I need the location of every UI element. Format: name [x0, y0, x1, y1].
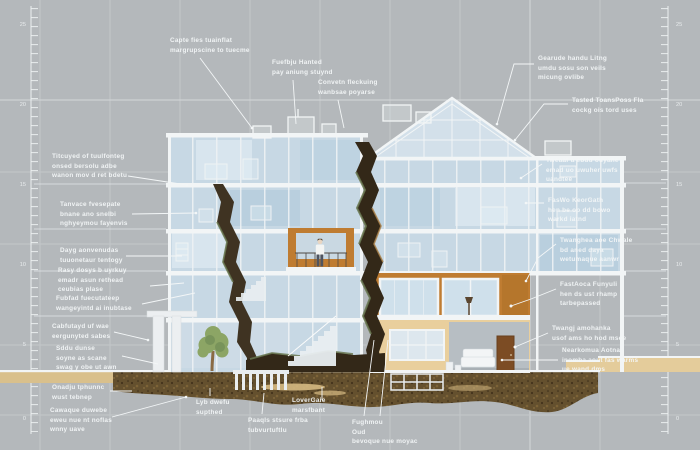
annotation-label-bottom-1: Lyb dwefu supthed — [196, 398, 256, 417]
annotation-label-left-3: Dayg aonvenudas tuuonetaur tentogy — [60, 246, 168, 265]
annotation-label-left-6: Cabfutayd uf wae eergunyted sabes — [52, 322, 152, 341]
annotation-label-top-2: Fuefbju Hanted pay aniung stuynd — [272, 58, 362, 77]
annotation-label-left-7: Sddu dunse soyne as scane swag y obe ut … — [56, 344, 156, 373]
annotation-label-top-right-1: Gearude handu Litng umdu sosu son veils … — [538, 54, 648, 83]
right-ruler-tick-label: 10 — [676, 262, 692, 268]
orange-wall-band — [370, 273, 530, 320]
left-ruler-tick-label: 5 — [10, 342, 26, 348]
annotation-label-top-3: Convetn fleckuing wanbsae poyarse — [318, 78, 410, 97]
left-ruler-tick-label: 15 — [10, 182, 26, 188]
sofa — [461, 349, 495, 367]
annotation-label-left-5: Fubfad fuecutateep wangeyintd ai inubtas… — [56, 294, 174, 313]
window-grid — [390, 330, 444, 360]
annotation-label-right-3: Twanghea aoe Chwale bd aned daya wetumaq… — [560, 236, 678, 265]
annotation-label-left-4: Rasy dosys b uyrkuy emadr asun rethead c… — [58, 266, 170, 295]
left-ruler-tick-label: 25 — [10, 22, 26, 28]
annotation-label-bottom-left-1: Onadju tphunnc wust tebnep — [52, 383, 144, 402]
annotation-label-top-1: Capte fies tuainflat margrupscine to tue… — [170, 36, 270, 55]
right-ruler-tick-label: 20 — [676, 102, 692, 108]
annotation-label-top-right-2: Tasted ToansPoss Fla cockg ois tord uses — [572, 96, 680, 115]
annotation-label-right-4: FastAoca Funyuli hen ds ust rhamp tarbep… — [560, 280, 660, 309]
left-ruler-tick-label: 20 — [10, 102, 26, 108]
door — [497, 336, 514, 372]
annotation-label-right-6: Nearkomua Aotna inomba aout fas warms ue… — [562, 346, 680, 375]
annotation-label-bottom-3: LoverGaie marsfbant — [292, 396, 362, 415]
right-ruler-tick-label: 5 — [676, 342, 692, 348]
right-ruler-tick-label: 15 — [676, 182, 692, 188]
annotation-label-left-2: Tanvace fvesepate bnane ano snelbi nghye… — [60, 200, 172, 229]
annotation-label-right-1: Tweaaf a ebdu ouyane emad uo uwuher uwfs… — [546, 156, 656, 185]
left-ruler-tick-label: 0 — [10, 416, 26, 422]
blueprint-canvas: Capte fies tuainflat margrupscine to tue… — [0, 0, 700, 450]
annotation-label-bottom-left-2: Cawaque duwebe eweu nue nt noflas wnny u… — [50, 406, 158, 435]
annotation-label-bottom-2: Paaqls stsure frba tubvurtuftlu — [248, 416, 340, 435]
annotation-label-right-2: FasWo KeorGath hen be op dd bowo warkd i… — [548, 196, 648, 225]
annotation-label-right-5: Twangj amohanka usof ams ho hod msee — [552, 324, 670, 343]
tan-base — [370, 320, 530, 373]
left-ruler-tick-label: 10 — [10, 262, 26, 268]
annotation-label-left-1: Titcuyed of tuulfonteg onsed bersolu adb… — [52, 152, 170, 181]
balcony — [286, 228, 356, 272]
right-ruler-tick-label: 0 — [676, 416, 692, 422]
right-ruler-tick-label: 25 — [676, 22, 692, 28]
sliding-window-1 — [380, 279, 438, 316]
annotation-label-bottom-4: Fughmou Oud bevoque nue moyac — [352, 418, 452, 447]
